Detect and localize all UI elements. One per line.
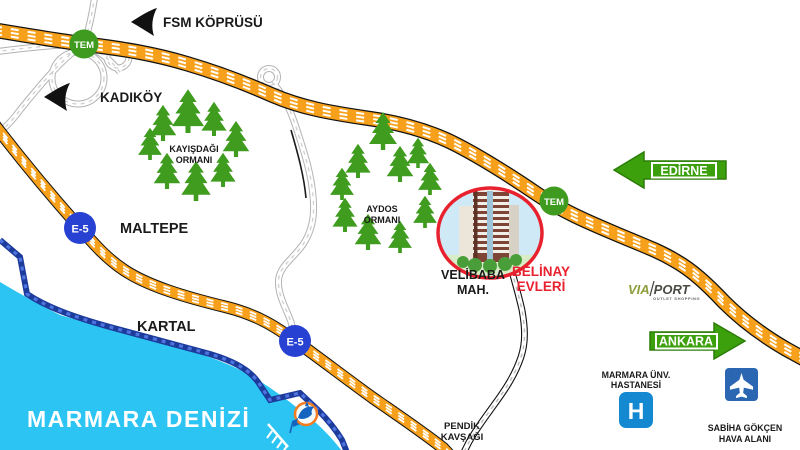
edirne-arrow: EDİRNE <box>614 152 726 188</box>
svg-text:H: H <box>628 398 645 424</box>
maltepe-label: MALTEPE <box>120 221 189 237</box>
ankara-arrow: ANKARA <box>650 323 745 359</box>
location-map: KAYIŞDAĞI ORMANI AYDOS ORMANI TEM TEM E-… <box>0 0 800 450</box>
hospital-landmark: MARMARA ÜNV. HASTANESİ H <box>602 370 671 428</box>
svg-text:SABİHA GÖKÇEN: SABİHA GÖKÇEN <box>708 423 782 433</box>
svg-text:E-5: E-5 <box>286 337 303 349</box>
svg-text:HAVA ALANI: HAVA ALANI <box>719 434 771 444</box>
aydos-forest-label: AYDOS ORMANI <box>364 204 401 225</box>
tem-badge-1: TEM <box>70 30 99 59</box>
svg-text:AYDOS: AYDOS <box>366 204 397 214</box>
airport-landmark: SABİHA GÖKÇEN HAVA ALANI <box>708 368 782 444</box>
svg-text:HASTANESİ: HASTANESİ <box>611 380 661 390</box>
velibaba-label: VELİBABA MAH. <box>441 267 505 297</box>
pine-tree-icon <box>172 89 204 133</box>
svg-text:FSM KÖPRÜSÜ: FSM KÖPRÜSÜ <box>163 15 263 30</box>
svg-text:EVLERİ: EVLERİ <box>517 279 566 294</box>
svg-text:TEM: TEM <box>544 197 564 208</box>
svg-text:MAH.: MAH. <box>457 283 489 297</box>
belinay-label: BELİNAY EVLERİ <box>512 264 570 294</box>
marina-dolphin-icon <box>293 401 317 425</box>
svg-text:VIAPORT: VIAPORT <box>628 282 691 297</box>
svg-text:PENDİK: PENDİK <box>444 421 480 432</box>
tem-highway <box>0 26 800 364</box>
svg-text:KAYIŞDAĞI: KAYIŞDAĞI <box>169 143 218 154</box>
tem-badge-2: TEM <box>540 187 569 216</box>
svg-text:EDİRNE: EDİRNE <box>660 163 707 178</box>
svg-text:ORMANI: ORMANI <box>364 215 401 225</box>
map-canvas: KAYIŞDAĞI ORMANI AYDOS ORMANI TEM TEM E-… <box>0 0 800 450</box>
svg-text:KAVŞAĞI: KAVŞAĞI <box>441 431 484 443</box>
svg-text:BELİNAY: BELİNAY <box>512 264 570 279</box>
svg-text:ORMANI: ORMANI <box>176 155 213 165</box>
pendik-junction-label: PENDİK KAVŞAĞI <box>441 421 484 443</box>
e5-badge-1: E-5 <box>64 212 96 244</box>
sea-label: MARMARA DENİZİ <box>27 406 250 432</box>
svg-text:KADIKÖY: KADIKÖY <box>100 90 162 105</box>
arrow-left-icon <box>131 8 157 36</box>
interchange-ramps <box>0 0 129 138</box>
fsm-direction: FSM KÖPRÜSÜ <box>131 8 263 36</box>
svg-text:ANKARA: ANKARA <box>659 335 713 349</box>
svg-text:MARMARA ÜNV.: MARMARA ÜNV. <box>602 370 671 380</box>
svg-text:TEM: TEM <box>74 40 94 51</box>
svg-text:VELİBABA: VELİBABA <box>441 267 505 282</box>
e5-badge-2: E-5 <box>279 325 311 357</box>
kayisdagi-forest-label: KAYIŞDAĞI ORMANI <box>169 143 218 165</box>
svg-text:OUTLET SHOPPING: OUTLET SHOPPING <box>653 296 700 301</box>
svg-text:E-5: E-5 <box>71 224 88 236</box>
kartal-label: KARTAL <box>137 319 196 335</box>
viaport-logo: VIAPORT OUTLET SHOPPING <box>628 281 700 301</box>
